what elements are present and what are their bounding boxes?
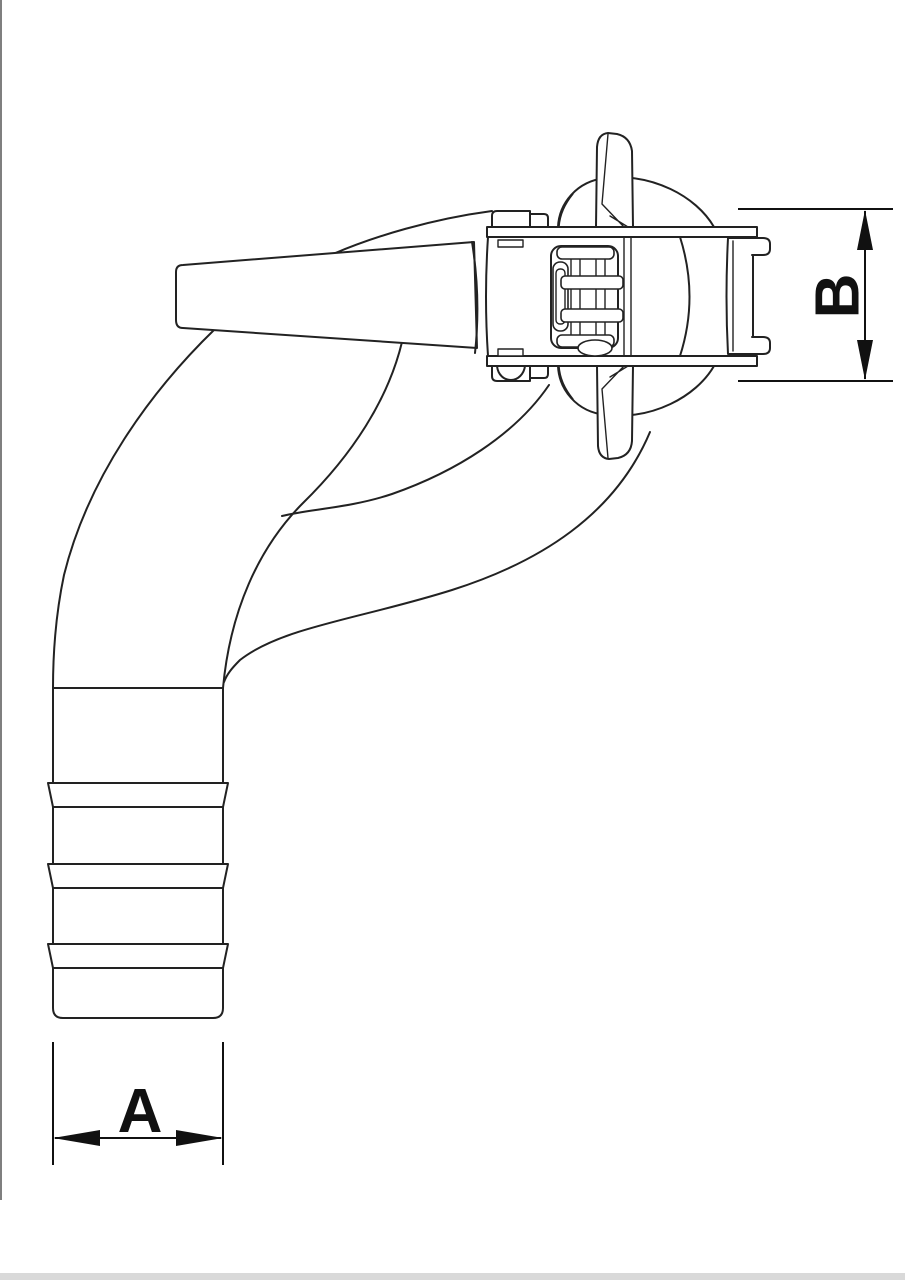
latch-mullion (596, 258, 605, 338)
barb-ring (48, 864, 228, 888)
tapered-neck (176, 242, 477, 348)
latch-cross-bar-upper (561, 276, 623, 289)
seal-hook-bottom (751, 337, 770, 354)
seal-face-block (727, 238, 754, 354)
dimension-a: A (53, 1042, 223, 1165)
barrel-tab-top (498, 240, 523, 247)
page-bottom-strip (0, 1273, 905, 1280)
barrel-tab-bottom (498, 349, 523, 356)
elbow-bell-upper-contour (282, 385, 549, 516)
dim-a-arrow-left (53, 1130, 100, 1146)
hinge-tab-top-outer (492, 211, 530, 227)
dim-b-label: B (804, 274, 873, 319)
dim-a-arrow-right (176, 1130, 223, 1146)
drawing-lines (48, 133, 770, 1018)
top-dome (558, 177, 714, 227)
barb-ring (48, 783, 228, 807)
seal-hook-top (751, 238, 770, 255)
hinge-tab-bottom-inner (530, 366, 548, 378)
dimension-b: B (738, 209, 893, 381)
latch-mullion (571, 258, 580, 338)
hose-barb-tail (48, 688, 228, 1018)
elbow-coupling-drawing: B A (0, 0, 905, 1280)
bottom-dome (558, 366, 714, 416)
latch-top-bar (557, 247, 614, 259)
top-flange (487, 227, 757, 237)
latch-roller (578, 340, 612, 356)
elbow-bell-lower-contour (224, 432, 650, 682)
barrel-right-edge (680, 237, 690, 356)
dim-b-arrow-down (857, 340, 873, 380)
top-lug (596, 133, 633, 227)
elbow-outer-curve (53, 329, 215, 688)
dim-b-arrow-up (857, 210, 873, 250)
cam-latch (551, 246, 623, 356)
latch-cross-bar-lower (561, 309, 623, 322)
bottom-flange (487, 356, 757, 366)
lug-plane-lines (624, 237, 631, 356)
technical-drawing-page: B A (0, 0, 905, 1280)
barb-ring (48, 944, 228, 968)
bottom-lug (597, 366, 633, 459)
dim-a-label: A (118, 1077, 163, 1146)
elbow-inner-curve (223, 342, 402, 688)
hinge-tab-top-inner (530, 214, 548, 227)
barrel-left-edge (486, 237, 488, 356)
